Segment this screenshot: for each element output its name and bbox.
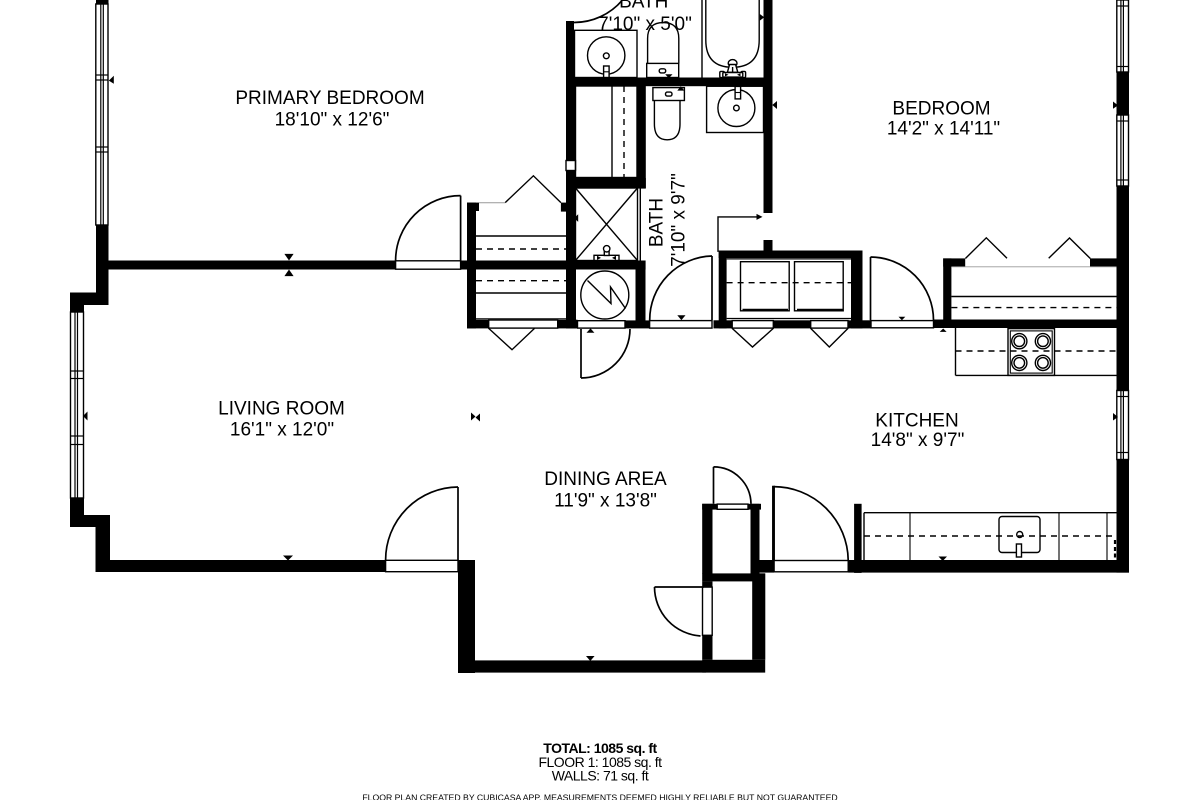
svg-text:BATH: BATH: [619, 0, 668, 13]
svg-text:BEDROOM: BEDROOM: [892, 99, 990, 120]
svg-text:11'9" x 13'8": 11'9" x 13'8": [554, 491, 657, 512]
svg-text:KITCHEN: KITCHEN: [875, 411, 958, 432]
svg-text:DINING AREA: DINING AREA: [544, 469, 667, 490]
svg-text:PRIMARY BEDROOM: PRIMARY BEDROOM: [235, 88, 424, 109]
svg-text:7'10" x 5'0": 7'10" x 5'0": [598, 14, 692, 35]
svg-text:18'10" x 12'6": 18'10" x 12'6": [275, 110, 390, 131]
svg-text:LIVING ROOM: LIVING ROOM: [218, 399, 345, 420]
svg-text:BATH: BATH: [647, 198, 668, 247]
svg-text:14'2" x 14'11": 14'2" x 14'11": [887, 119, 1000, 140]
svg-text:WALLS: 71 sq. ft: WALLS: 71 sq. ft: [552, 767, 649, 783]
svg-text:16'1" x 12'0": 16'1" x 12'0": [230, 420, 334, 441]
svg-text:FLOOR PLAN CREATED BY CUBICASA: FLOOR PLAN CREATED BY CUBICASA APP, MEAS…: [362, 792, 837, 800]
svg-text:7'10" x 9'7": 7'10" x 9'7": [669, 173, 690, 267]
svg-text:14'8" x 9'7": 14'8" x 9'7": [871, 430, 965, 451]
